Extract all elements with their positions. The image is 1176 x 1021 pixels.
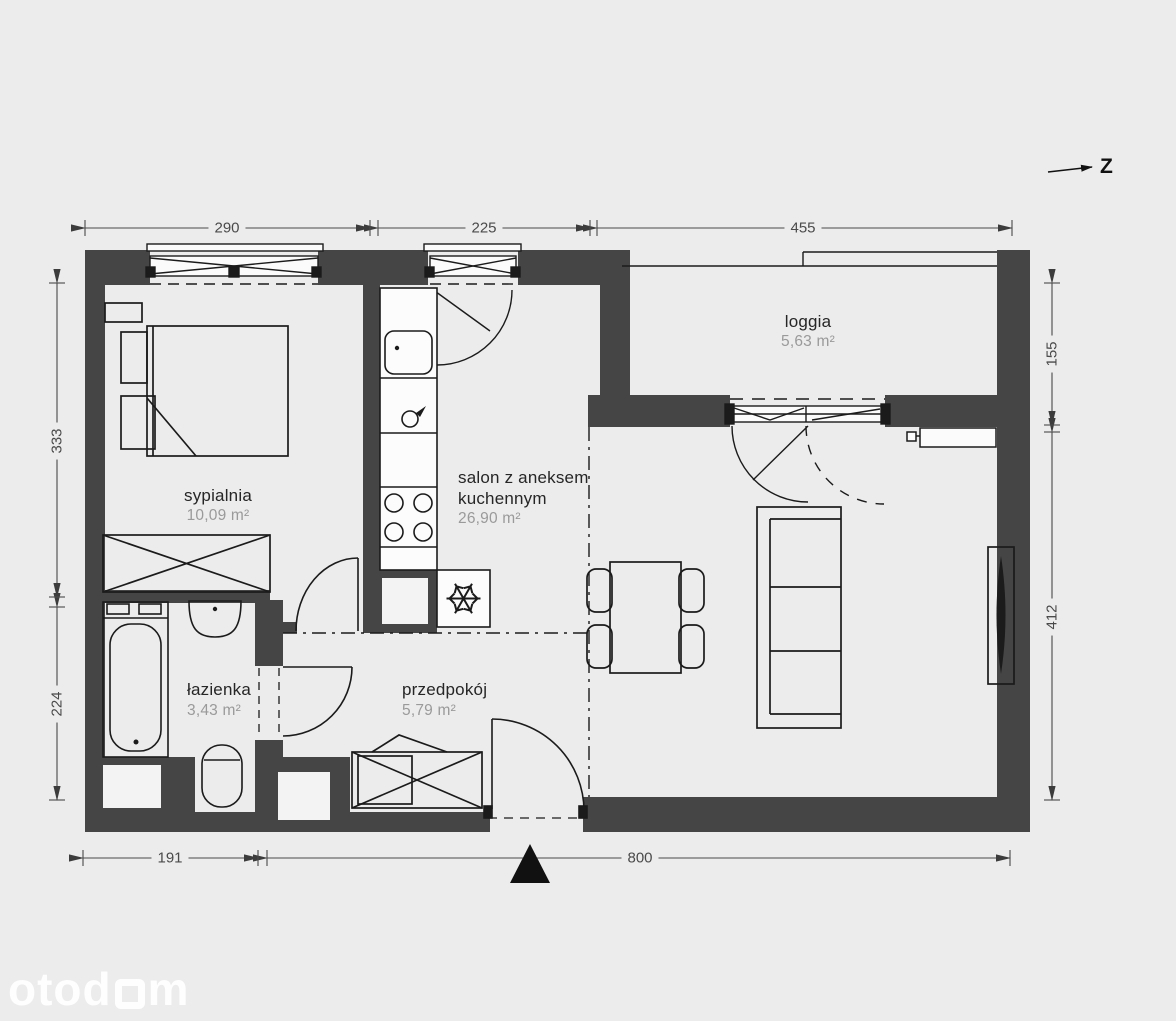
room-label-sypialnia: sypialnia	[184, 486, 252, 506]
wall-top-b	[318, 250, 428, 285]
north-label: Z	[1100, 155, 1113, 179]
watermark-text-left: otod	[8, 966, 112, 1012]
bedroom-furniture	[103, 303, 288, 592]
nightstand	[121, 332, 147, 383]
chair	[587, 625, 612, 668]
room-area-przedpokoj: 5,79 m²	[402, 702, 456, 720]
kitchen-window	[424, 244, 521, 365]
room-label-przedpokoj: przedpokój	[402, 680, 487, 700]
washbasin	[189, 601, 241, 637]
radiator	[907, 428, 996, 447]
floorplan-drawing	[0, 0, 1176, 1021]
room-area-sypialnia: 10,09 m²	[187, 507, 250, 525]
otodom-watermark: otod m	[8, 966, 190, 1012]
wall-loggia-bottom-left	[588, 395, 730, 427]
room-area-loggia: 5,63 m²	[781, 333, 835, 351]
entrance-marker-triangle	[510, 844, 550, 883]
bedroom-shelf	[105, 303, 142, 322]
wall-kitchen-west	[363, 285, 380, 570]
bathroom-door-swing-arc	[283, 667, 352, 736]
room-label-salon-line1: salon z aneksem	[458, 468, 589, 488]
chair	[587, 569, 612, 612]
bathtub-tap	[139, 604, 161, 614]
balcony-door	[725, 404, 890, 504]
room-area-lazienka: 3,43 m²	[187, 702, 241, 720]
hall-wardrobe-open-flap	[372, 735, 447, 752]
room-area-salon: 26,90 m²	[458, 510, 521, 528]
room-label-salon-line2: kuchennym	[458, 489, 547, 509]
shaft-kitchen	[382, 578, 428, 624]
shaft-hall	[278, 772, 330, 820]
bedroom-door-swing-arc	[296, 558, 358, 631]
toilet	[202, 745, 242, 807]
bathtub-tap	[107, 604, 129, 614]
dim-right-412: 412	[1044, 598, 1061, 635]
dim-right-155: 155	[1044, 335, 1061, 372]
dim-top-290: 290	[208, 220, 245, 237]
bed	[147, 326, 288, 456]
watermark-text-right: m	[148, 966, 190, 1012]
dim-left-333: 333	[49, 422, 66, 459]
dim-top-455: 455	[784, 220, 821, 237]
dim-top-225: 225	[465, 220, 502, 237]
nightstand	[121, 396, 155, 449]
bathroom-door	[259, 667, 352, 738]
salon-furniture	[587, 507, 1014, 728]
wall-bath-east-top	[255, 600, 283, 666]
dim-bottom-800: 800	[621, 850, 658, 867]
shaft-bath	[103, 765, 161, 808]
dining-table	[610, 562, 681, 673]
bathtub	[103, 602, 168, 757]
dimension-lines	[49, 220, 1060, 866]
wall-loggia-bottom-right	[885, 395, 997, 427]
wall-left-exterior	[85, 250, 105, 832]
room-label-lazienka: łazienka	[187, 680, 251, 700]
wall-top-a	[85, 250, 150, 285]
wall-bedroom-south-stub	[283, 622, 297, 633]
dim-bottom-191: 191	[151, 850, 188, 867]
dim-left-224: 224	[49, 685, 66, 722]
chair	[679, 625, 704, 668]
hall-furniture	[352, 735, 482, 808]
balcony-door-tilt-arc	[806, 426, 884, 504]
bedroom-door	[296, 558, 358, 631]
entrance-door	[484, 719, 587, 818]
room-label-loggia: loggia	[785, 312, 832, 332]
chair	[679, 569, 704, 612]
wall-right-exterior	[997, 250, 1030, 832]
north-arrow	[1048, 167, 1092, 172]
floorplan-page: Z sypialnia 10,09 m² salon z aneksem kuc…	[0, 0, 1176, 1021]
wall-bottom-right	[583, 797, 997, 832]
bathtub-basin	[110, 624, 161, 751]
entrance-door-swing-arc	[492, 719, 584, 811]
bedroom-window	[146, 244, 323, 284]
watermark-square-glyph	[115, 979, 145, 1009]
